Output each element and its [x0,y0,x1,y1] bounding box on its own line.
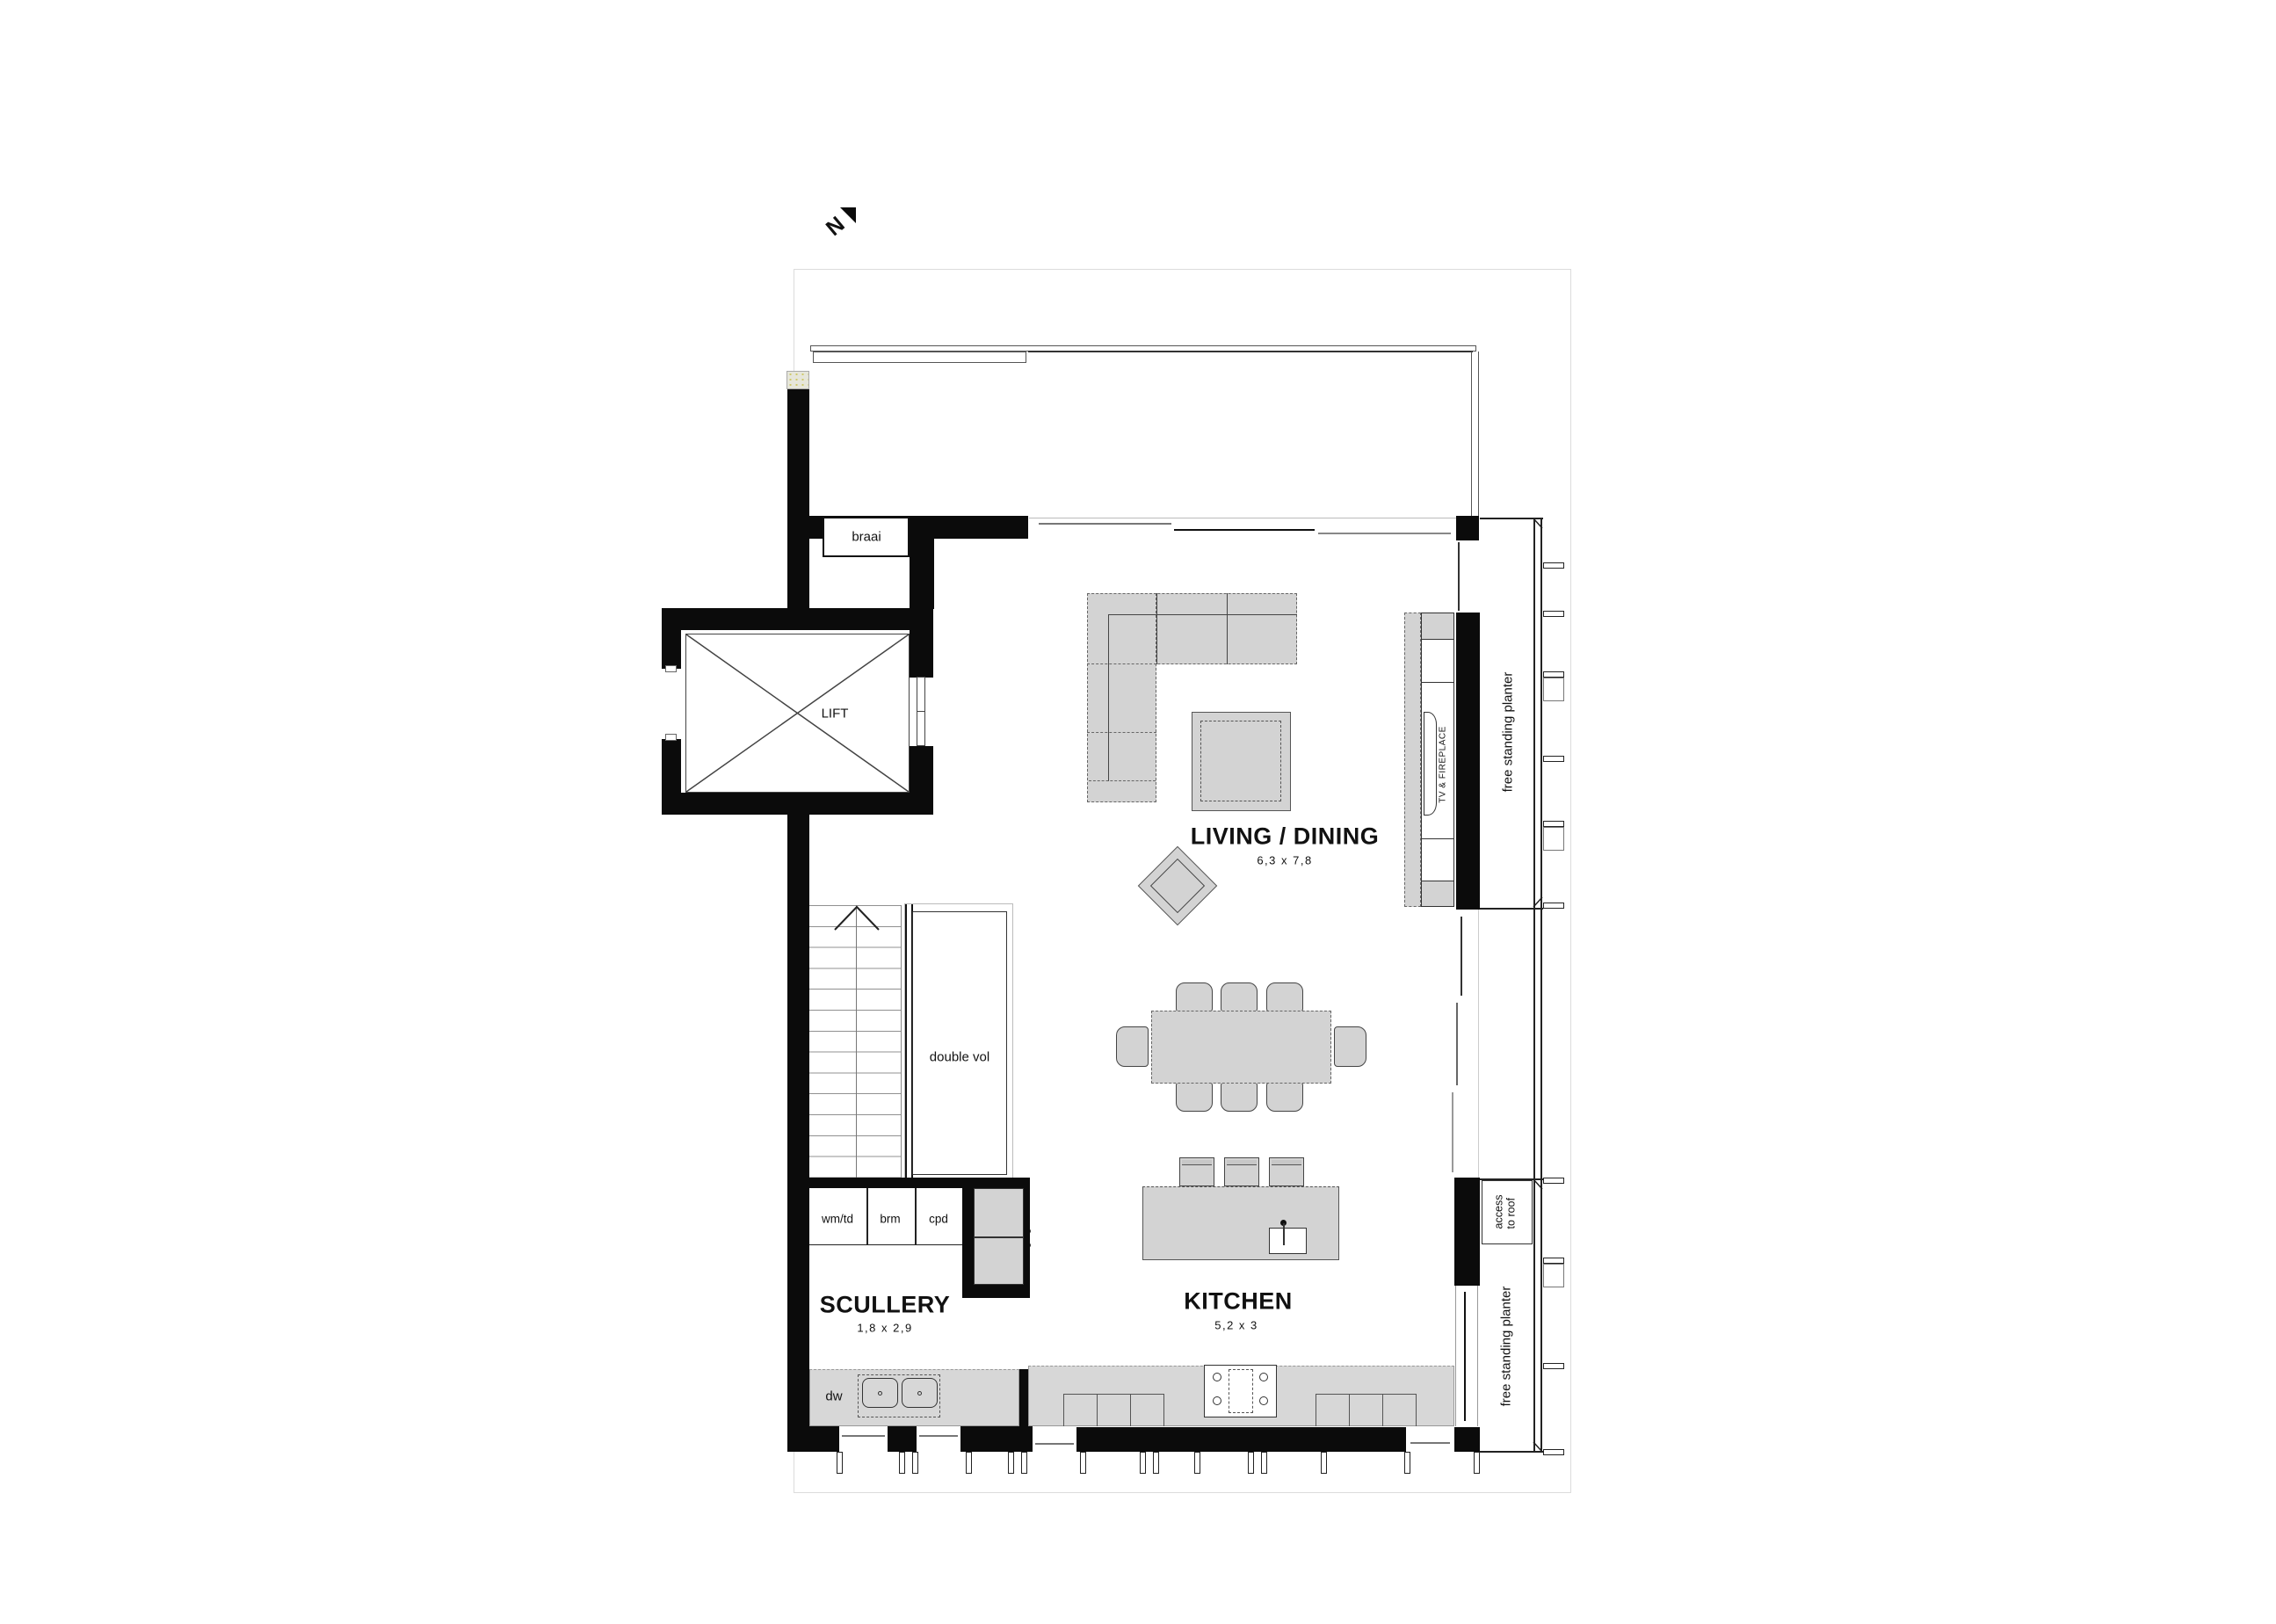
stair-direction-arrow-icon [835,907,879,930]
planter-mitre [1533,518,1542,528]
floor-plan-canvas: N braai LIFT double vol wm/td brm cpd SC… [0,0,2276,1624]
planter-mitre [1533,1442,1542,1452]
planter-mitre [1533,897,1542,907]
north-arrow-icon [840,207,856,223]
planter-mitre [1533,1179,1542,1189]
linework-overlay [0,0,2276,1624]
